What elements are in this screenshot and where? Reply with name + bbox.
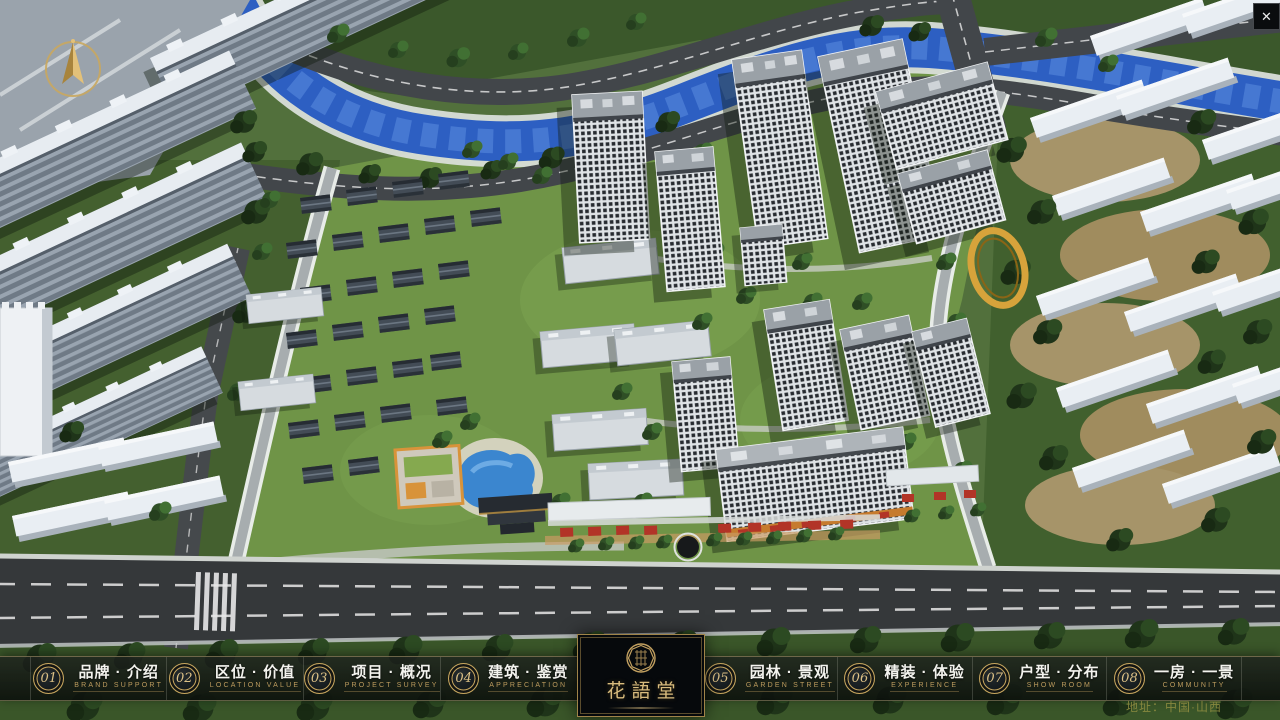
nav-title: 园林 · 景观	[750, 665, 830, 681]
close-icon: ✕	[1261, 10, 1272, 23]
brand-seal-icon	[625, 642, 657, 674]
nav-title: 户型 · 分布	[1019, 665, 1099, 681]
nav-subtitle: LOCATION VALUE	[209, 682, 301, 692]
nav-number-badge: 06	[844, 663, 875, 694]
presentation-window: ✕ 01 品牌 · 介绍 BRAND SUPPORT 02 区位 · 价值 LO…	[0, 0, 1280, 720]
nav-item-garden-landscape[interactable]: 05 园林 · 景观 GARDEN STREET	[702, 657, 837, 700]
nav-number-badge: 04	[448, 663, 479, 694]
nav-title: 建筑 · 鉴赏	[488, 665, 568, 681]
entrance-plaza	[677, 536, 699, 558]
nav-number-badge: 01	[33, 663, 64, 694]
nav-title: 区位 · 价值	[215, 665, 295, 681]
brand-subtitle-line	[608, 707, 674, 709]
nav-number-badge: 08	[1114, 663, 1145, 694]
nav-number-badge: 02	[169, 663, 200, 694]
nav-title: 一房 · 一景	[1154, 665, 1234, 681]
nav-subtitle: SHOW ROOM	[1026, 682, 1093, 692]
nav-subtitle: GARDEN STREET	[745, 682, 835, 692]
nav-title: 项目 · 概况	[351, 665, 431, 681]
nav-number-badge: 05	[705, 663, 736, 694]
nav-number-badge: 07	[979, 663, 1010, 694]
aerial-masterplan-view[interactable]	[0, 0, 1280, 720]
nav-group-right: 05 园林 · 景观 GARDEN STREET 06 精装 · 体验 EXPE…	[702, 657, 1242, 700]
nav-item-decoration-experience[interactable]: 06 精装 · 体验 EXPERIENCE	[837, 657, 972, 700]
nav-subtitle: PROJECT SURVEY	[344, 682, 440, 692]
nav-title: 精装 · 体验	[884, 665, 964, 681]
brand-logo-panel[interactable]: 花語堂	[577, 634, 705, 717]
nav-item-room-view[interactable]: 08 一房 · 一景 COMMUNITY	[1106, 657, 1242, 700]
nav-subtitle: EXPERIENCE	[890, 682, 959, 692]
nav-number-badge: 03	[304, 663, 335, 694]
compass-north-icon	[40, 36, 106, 102]
nav-item-project-survey[interactable]: 03 项目 · 概况 PROJECT SURVEY	[303, 657, 440, 700]
close-button[interactable]: ✕	[1253, 3, 1280, 30]
nav-item-unit-distribution[interactable]: 07 户型 · 分布 SHOW ROOM	[972, 657, 1107, 700]
nav-subtitle: BRAND SUPPORT	[73, 682, 164, 692]
project-address: 地址：中国·山西	[1126, 698, 1222, 715]
nav-item-architecture[interactable]: 04 建筑 · 鉴赏 APPRECIATION	[440, 657, 576, 700]
nav-group-left: 01 品牌 · 介绍 BRAND SUPPORT 02 区位 · 价值 LOCA…	[30, 657, 576, 700]
nav-item-location-value[interactable]: 02 区位 · 价值 LOCATION VALUE	[166, 657, 302, 700]
courtyard-club	[395, 446, 463, 508]
brand-name: 花語堂	[600, 676, 681, 703]
nav-item-brand-intro[interactable]: 01 品牌 · 介绍 BRAND SUPPORT	[30, 657, 166, 700]
nav-subtitle: APPRECIATION	[488, 682, 568, 692]
nav-title: 品牌 · 介绍	[78, 665, 158, 681]
nav-subtitle: COMMUNITY	[1162, 682, 1227, 692]
